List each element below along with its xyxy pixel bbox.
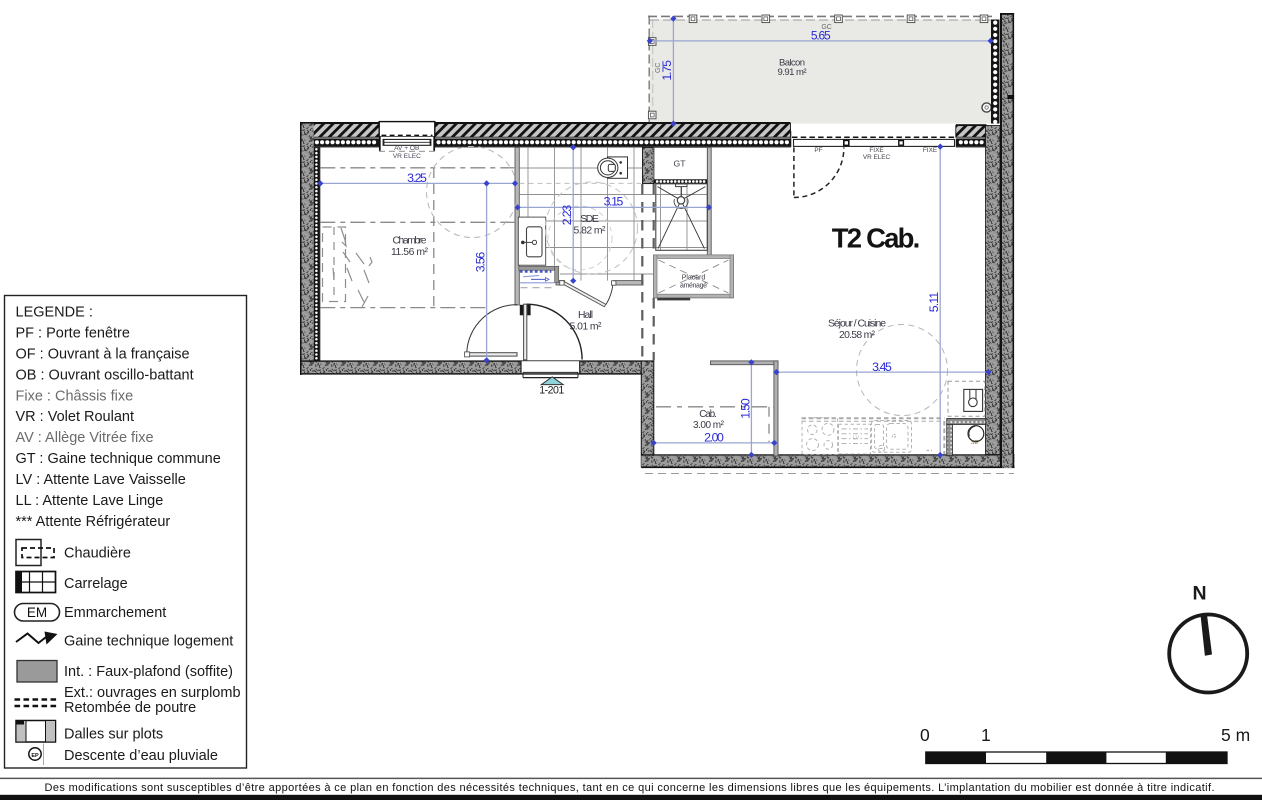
svg-text:aménagé: aménagé: [680, 283, 707, 290]
svg-text:PF: PF: [814, 147, 822, 154]
svg-text:FIXE: FIXE: [923, 147, 937, 154]
svg-text:1: 1: [981, 725, 991, 745]
svg-text:Des modifications sont suscept: Des modifications sont susceptibles d’êt…: [45, 782, 1215, 794]
svg-text:*** Attente Réfrigérateur: *** Attente Réfrigérateur: [16, 514, 171, 530]
svg-text:GC: GC: [821, 24, 832, 31]
svg-text:2.23: 2.23: [560, 205, 574, 226]
svg-text:1.50: 1.50: [738, 398, 752, 419]
svg-text:LV: LV: [853, 436, 860, 442]
svg-text:OB : Ouvrant oscillo-battant: OB : Ouvrant oscillo-battant: [16, 367, 194, 383]
svg-text:Gaine technique logement: Gaine technique logement: [64, 634, 233, 650]
svg-text:Carrelage: Carrelage: [64, 576, 128, 592]
svg-text:GC: GC: [655, 63, 662, 74]
svg-text:PF : Porte fenêtre: PF : Porte fenêtre: [16, 325, 130, 341]
svg-text:0: 0: [920, 725, 930, 745]
svg-text:Chaudière: Chaudière: [64, 546, 131, 562]
svg-text:Int. : Faux-plafond (soffite): Int. : Faux-plafond (soffite): [64, 664, 233, 680]
svg-text:VR ELEC: VR ELEC: [863, 154, 891, 161]
svg-text:3.56: 3.56: [473, 252, 487, 273]
svg-text:Dalles sur plots: Dalles sur plots: [64, 727, 163, 743]
svg-text:VR ELEC: VR ELEC: [393, 153, 421, 160]
svg-text:Hall: Hall: [578, 310, 593, 321]
svg-text:3.45: 3.45: [872, 360, 892, 374]
svg-text:SDE: SDE: [580, 214, 599, 225]
svg-text:Ext.: ouvrages en surplomb: Ext.: ouvrages en surplomb: [64, 685, 241, 701]
svg-text:1-201: 1-201: [539, 384, 564, 396]
svg-text:Placard: Placard: [682, 275, 706, 282]
svg-text:VR : Volet Roulant: VR : Volet Roulant: [16, 409, 135, 425]
svg-text:1.75: 1.75: [660, 60, 674, 81]
svg-text:SE: SE: [971, 440, 979, 446]
svg-text:5.82 m²: 5.82 m²: [574, 226, 607, 237]
svg-text:Descente d’eau pluviale: Descente d’eau pluviale: [64, 748, 218, 764]
svg-text:LEGENDE :: LEGENDE :: [16, 305, 93, 321]
svg-text:9.91 m²: 9.91 m²: [778, 67, 807, 78]
svg-text:3.15: 3.15: [604, 194, 624, 208]
svg-text:Séjour / Cuisine: Séjour / Cuisine: [828, 319, 886, 330]
svg-text:AV : Allège Vitrée fixe: AV : Allège Vitrée fixe: [16, 430, 154, 446]
svg-text:LV : Attente Lave Vaisselle: LV : Attente Lave Vaisselle: [16, 472, 186, 488]
svg-text:OF : Ouvrant à la française: OF : Ouvrant à la française: [16, 346, 190, 362]
svg-text:LL : Attente Lave Linge: LL : Attente Lave Linge: [16, 493, 164, 509]
svg-text:EM: EM: [27, 605, 47, 620]
svg-text:Cab.: Cab.: [699, 409, 717, 420]
svg-text:5 m: 5 m: [1221, 725, 1250, 745]
svg-text:Retombée de poutre: Retombée de poutre: [64, 700, 196, 716]
svg-text:EP: EP: [31, 753, 39, 759]
svg-text:3.25: 3.25: [407, 171, 427, 185]
svg-text:FIXE: FIXE: [869, 147, 883, 154]
svg-text:AV + OB: AV + OB: [394, 145, 420, 152]
svg-text:20.58 m²: 20.58 m²: [839, 330, 876, 341]
svg-text:Chambre: Chambre: [393, 236, 427, 247]
svg-text:5.11: 5.11: [927, 292, 941, 313]
svg-text:GT: GT: [674, 159, 687, 169]
svg-text:Emmarchement: Emmarchement: [64, 605, 166, 621]
svg-text:11.56 m²: 11.56 m²: [391, 247, 429, 258]
svg-text:GT : Gaine technique commune: GT : Gaine technique commune: [16, 451, 221, 467]
svg-text:N: N: [1193, 583, 1207, 605]
svg-text:Fixe : Châssis fixe: Fixe : Châssis fixe: [16, 388, 134, 404]
svg-text:2.00: 2.00: [704, 430, 724, 444]
svg-text:T2 Cab.: T2 Cab.: [832, 222, 921, 253]
svg-text:5.01 m²: 5.01 m²: [570, 321, 603, 332]
